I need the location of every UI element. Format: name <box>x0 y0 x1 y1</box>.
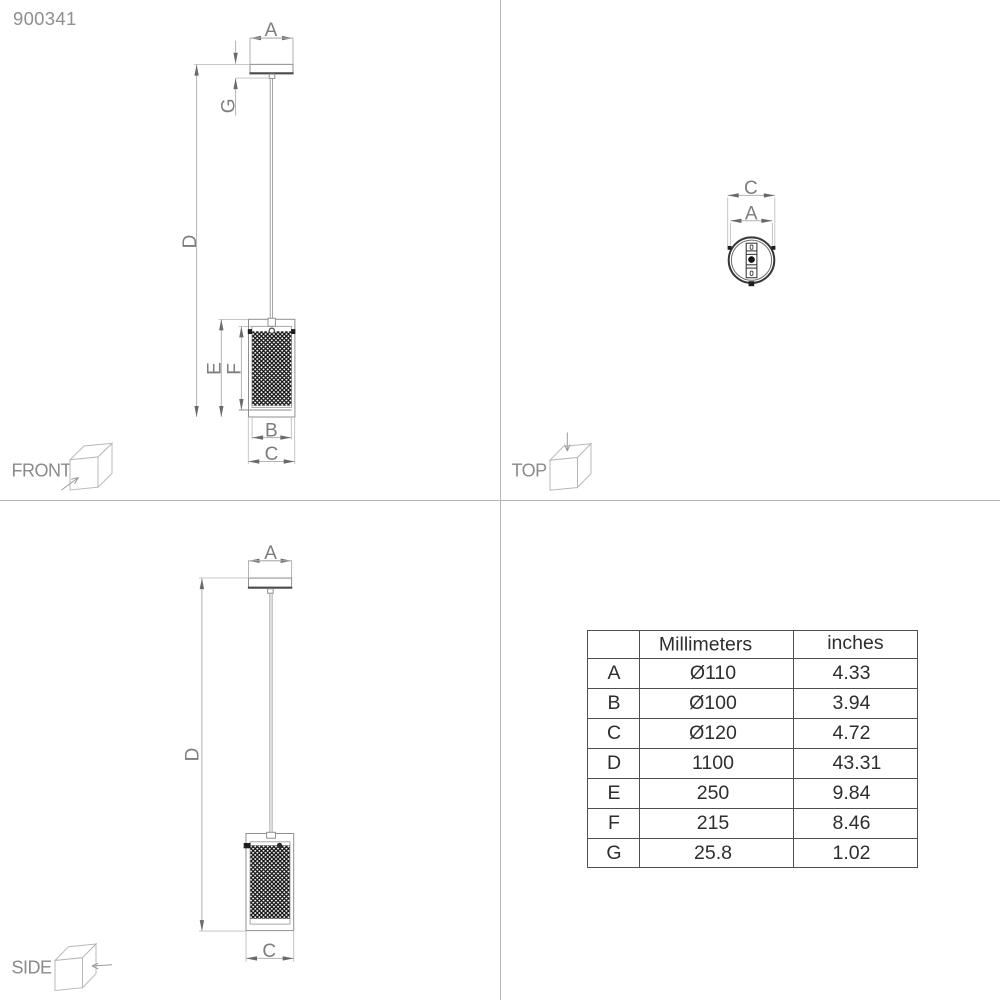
svg-text:Millimeters: Millimeters <box>659 633 752 655</box>
svg-text:215: 215 <box>697 812 730 834</box>
svg-text:D: D <box>180 235 201 249</box>
svg-text:250: 250 <box>697 782 730 804</box>
svg-text:G: G <box>219 98 240 113</box>
svg-text:1.02: 1.02 <box>833 842 871 864</box>
svg-text:9.84: 9.84 <box>833 782 871 804</box>
svg-text:E: E <box>607 782 620 804</box>
svg-text:Ø110: Ø110 <box>690 662 736 684</box>
svg-text:F: F <box>608 812 620 834</box>
svg-text:C: C <box>607 722 621 744</box>
svg-text:D: D <box>607 752 621 774</box>
svg-text:43.31: 43.31 <box>833 752 882 774</box>
svg-text:4.72: 4.72 <box>833 722 871 744</box>
svg-text:E: E <box>205 362 226 375</box>
svg-text:SIDE: SIDE <box>12 958 53 978</box>
svg-text:3.94: 3.94 <box>833 692 871 714</box>
svg-text:B: B <box>607 692 620 714</box>
svg-text:B: B <box>265 421 278 442</box>
svg-text:900341: 900341 <box>13 8 77 29</box>
svg-text:4.33: 4.33 <box>833 662 871 684</box>
svg-text:1100: 1100 <box>692 752 734 774</box>
svg-text:inches: inches <box>827 632 884 654</box>
svg-text:8.46: 8.46 <box>833 812 871 834</box>
svg-text:TOP: TOP <box>512 460 548 480</box>
svg-text:D: D <box>183 748 204 762</box>
svg-text:25.8: 25.8 <box>694 842 732 864</box>
svg-text:FRONT: FRONT <box>12 461 72 481</box>
svg-text:G: G <box>606 842 621 864</box>
svg-text:F: F <box>225 363 246 375</box>
svg-text:C: C <box>265 444 279 465</box>
svg-text:Ø100: Ø100 <box>689 692 737 714</box>
svg-text:Ø120: Ø120 <box>689 722 737 744</box>
svg-text:A: A <box>607 662 620 684</box>
